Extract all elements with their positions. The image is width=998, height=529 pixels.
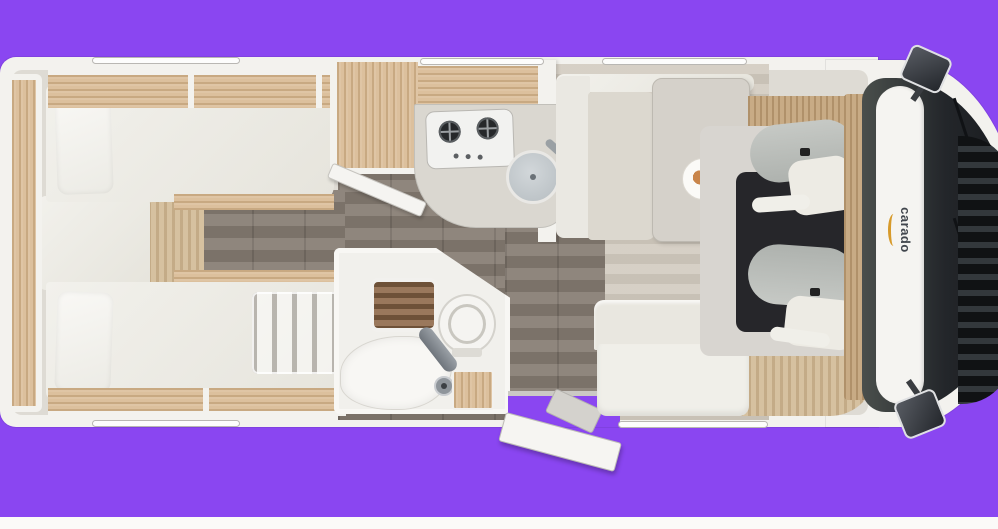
- gas-hob: [425, 108, 515, 169]
- between-beds-cushion: [38, 196, 150, 290]
- brand-logo-text: carado: [899, 207, 914, 253]
- dinette-side-bench-seat: [588, 92, 656, 240]
- toilet-seat-ring: [448, 304, 486, 344]
- rear-shelf-wood: [12, 80, 36, 406]
- kitchen-sink-drain: [530, 174, 536, 180]
- bottom-strip: [0, 517, 998, 529]
- hob-knob-2: [466, 154, 471, 159]
- window-rear-bottom: [92, 420, 240, 427]
- tap-drain-dot: [441, 383, 447, 389]
- overhead-locker-bottom: [48, 388, 346, 416]
- burner-right: [476, 117, 499, 140]
- brand-logo: carado: [883, 195, 919, 265]
- dinette-side-bench-back: [556, 76, 590, 238]
- wardrobe: [330, 62, 418, 174]
- window-rear-top: [92, 57, 240, 64]
- passenger-seatbelt-clip: [810, 288, 820, 296]
- shower-grate: [370, 278, 438, 332]
- vanity-cabinet: [452, 370, 494, 410]
- pillow-top: [54, 93, 113, 195]
- front-grille: [958, 136, 998, 404]
- hob-knob-1: [453, 153, 458, 158]
- window-dinette-top: [602, 58, 747, 65]
- window-dinette-bottom: [618, 421, 768, 428]
- bed-top-frame: [174, 194, 334, 210]
- window-kitchen-top: [420, 58, 544, 65]
- overhead-divider-2: [316, 72, 322, 108]
- bunk-ladder: [252, 292, 342, 374]
- driver-seatbelt-clip: [800, 148, 810, 156]
- pillow-bottom: [54, 291, 113, 393]
- overhead-divider-1: [188, 72, 194, 108]
- overhead-divider-3: [203, 388, 209, 414]
- hob-knob-3: [478, 155, 483, 160]
- toilet-hinge: [452, 348, 482, 357]
- motorhome-floorplan-scene: carado: [0, 0, 998, 529]
- burner-left: [438, 120, 461, 143]
